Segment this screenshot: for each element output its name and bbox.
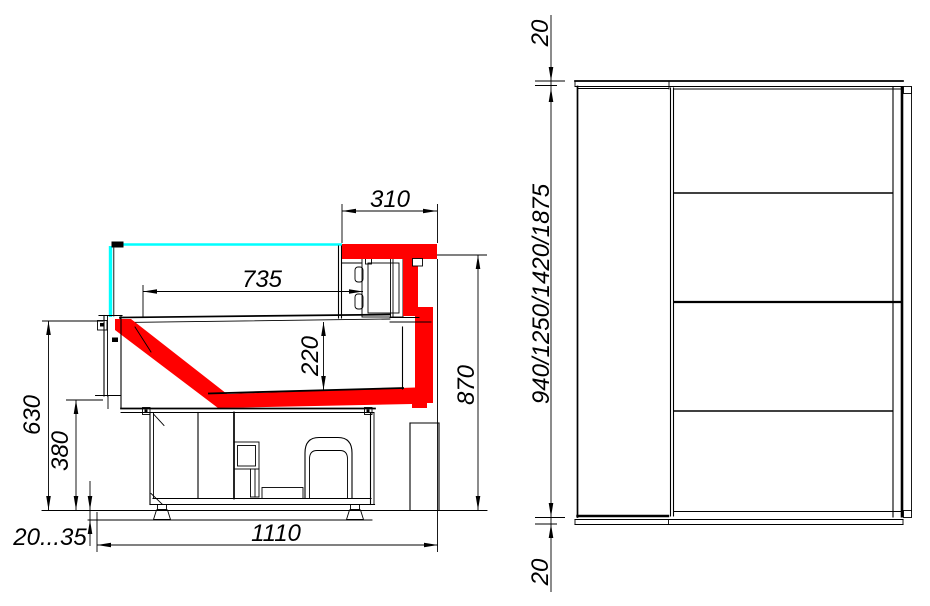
hinge-pin <box>100 323 104 327</box>
dim-canopy-width: 310 <box>370 186 411 213</box>
display-deck <box>120 315 390 324</box>
deck-bottom-line <box>124 319 390 323</box>
glass-front-shelves <box>674 89 902 512</box>
compressor-inner <box>310 451 348 499</box>
drawing-canvas: 310 735 220 630 380 <box>0 0 930 606</box>
dim-base-length: 1110 <box>251 520 301 547</box>
canopy-fitting <box>413 259 423 267</box>
foot-plate-left <box>154 510 171 520</box>
top-panel-strip <box>575 81 903 89</box>
foot-stem-right <box>351 505 360 510</box>
edge-bracket-bottom <box>904 511 912 518</box>
side-step <box>410 423 439 510</box>
dim-work-height: 870 <box>453 364 480 405</box>
glass-corner-cap <box>112 242 124 248</box>
section-view: 310 735 220 630 380 <box>12 186 487 552</box>
compressor <box>305 438 352 499</box>
deck-top-line <box>120 315 390 318</box>
dim-glass-height: 630 <box>19 394 46 435</box>
technical-drawing-page: 310 735 220 630 380 <box>0 0 930 606</box>
bottom-panel-strip <box>575 520 903 525</box>
mounting-plate <box>262 488 303 499</box>
duct-box-inner <box>368 263 399 313</box>
dim-bottom-panel: 20 <box>527 558 554 586</box>
dim-base-height: 380 <box>47 430 74 471</box>
glass-panels <box>111 242 343 318</box>
panel-fastener <box>112 338 118 343</box>
machine-compartment <box>121 408 375 505</box>
foot-plate-right <box>347 510 364 520</box>
end-panel-column <box>578 87 674 518</box>
front-view: 20 940/1250/1420/1875 20 <box>527 15 912 592</box>
dim-overall-heights: 940/1250/1420/1875 <box>528 183 555 404</box>
dim-top-panel: 20 <box>527 19 554 47</box>
dim-display-width: 735 <box>242 266 283 293</box>
dim-foot-range: 20...35 <box>12 524 87 551</box>
dim-display-height: 220 <box>297 335 324 377</box>
foot-stem-left <box>158 505 167 510</box>
front-dimensions: 20 940/1250/1420/1875 20 <box>527 15 565 592</box>
edge-bracket-top <box>904 87 912 94</box>
feet <box>154 505 364 520</box>
